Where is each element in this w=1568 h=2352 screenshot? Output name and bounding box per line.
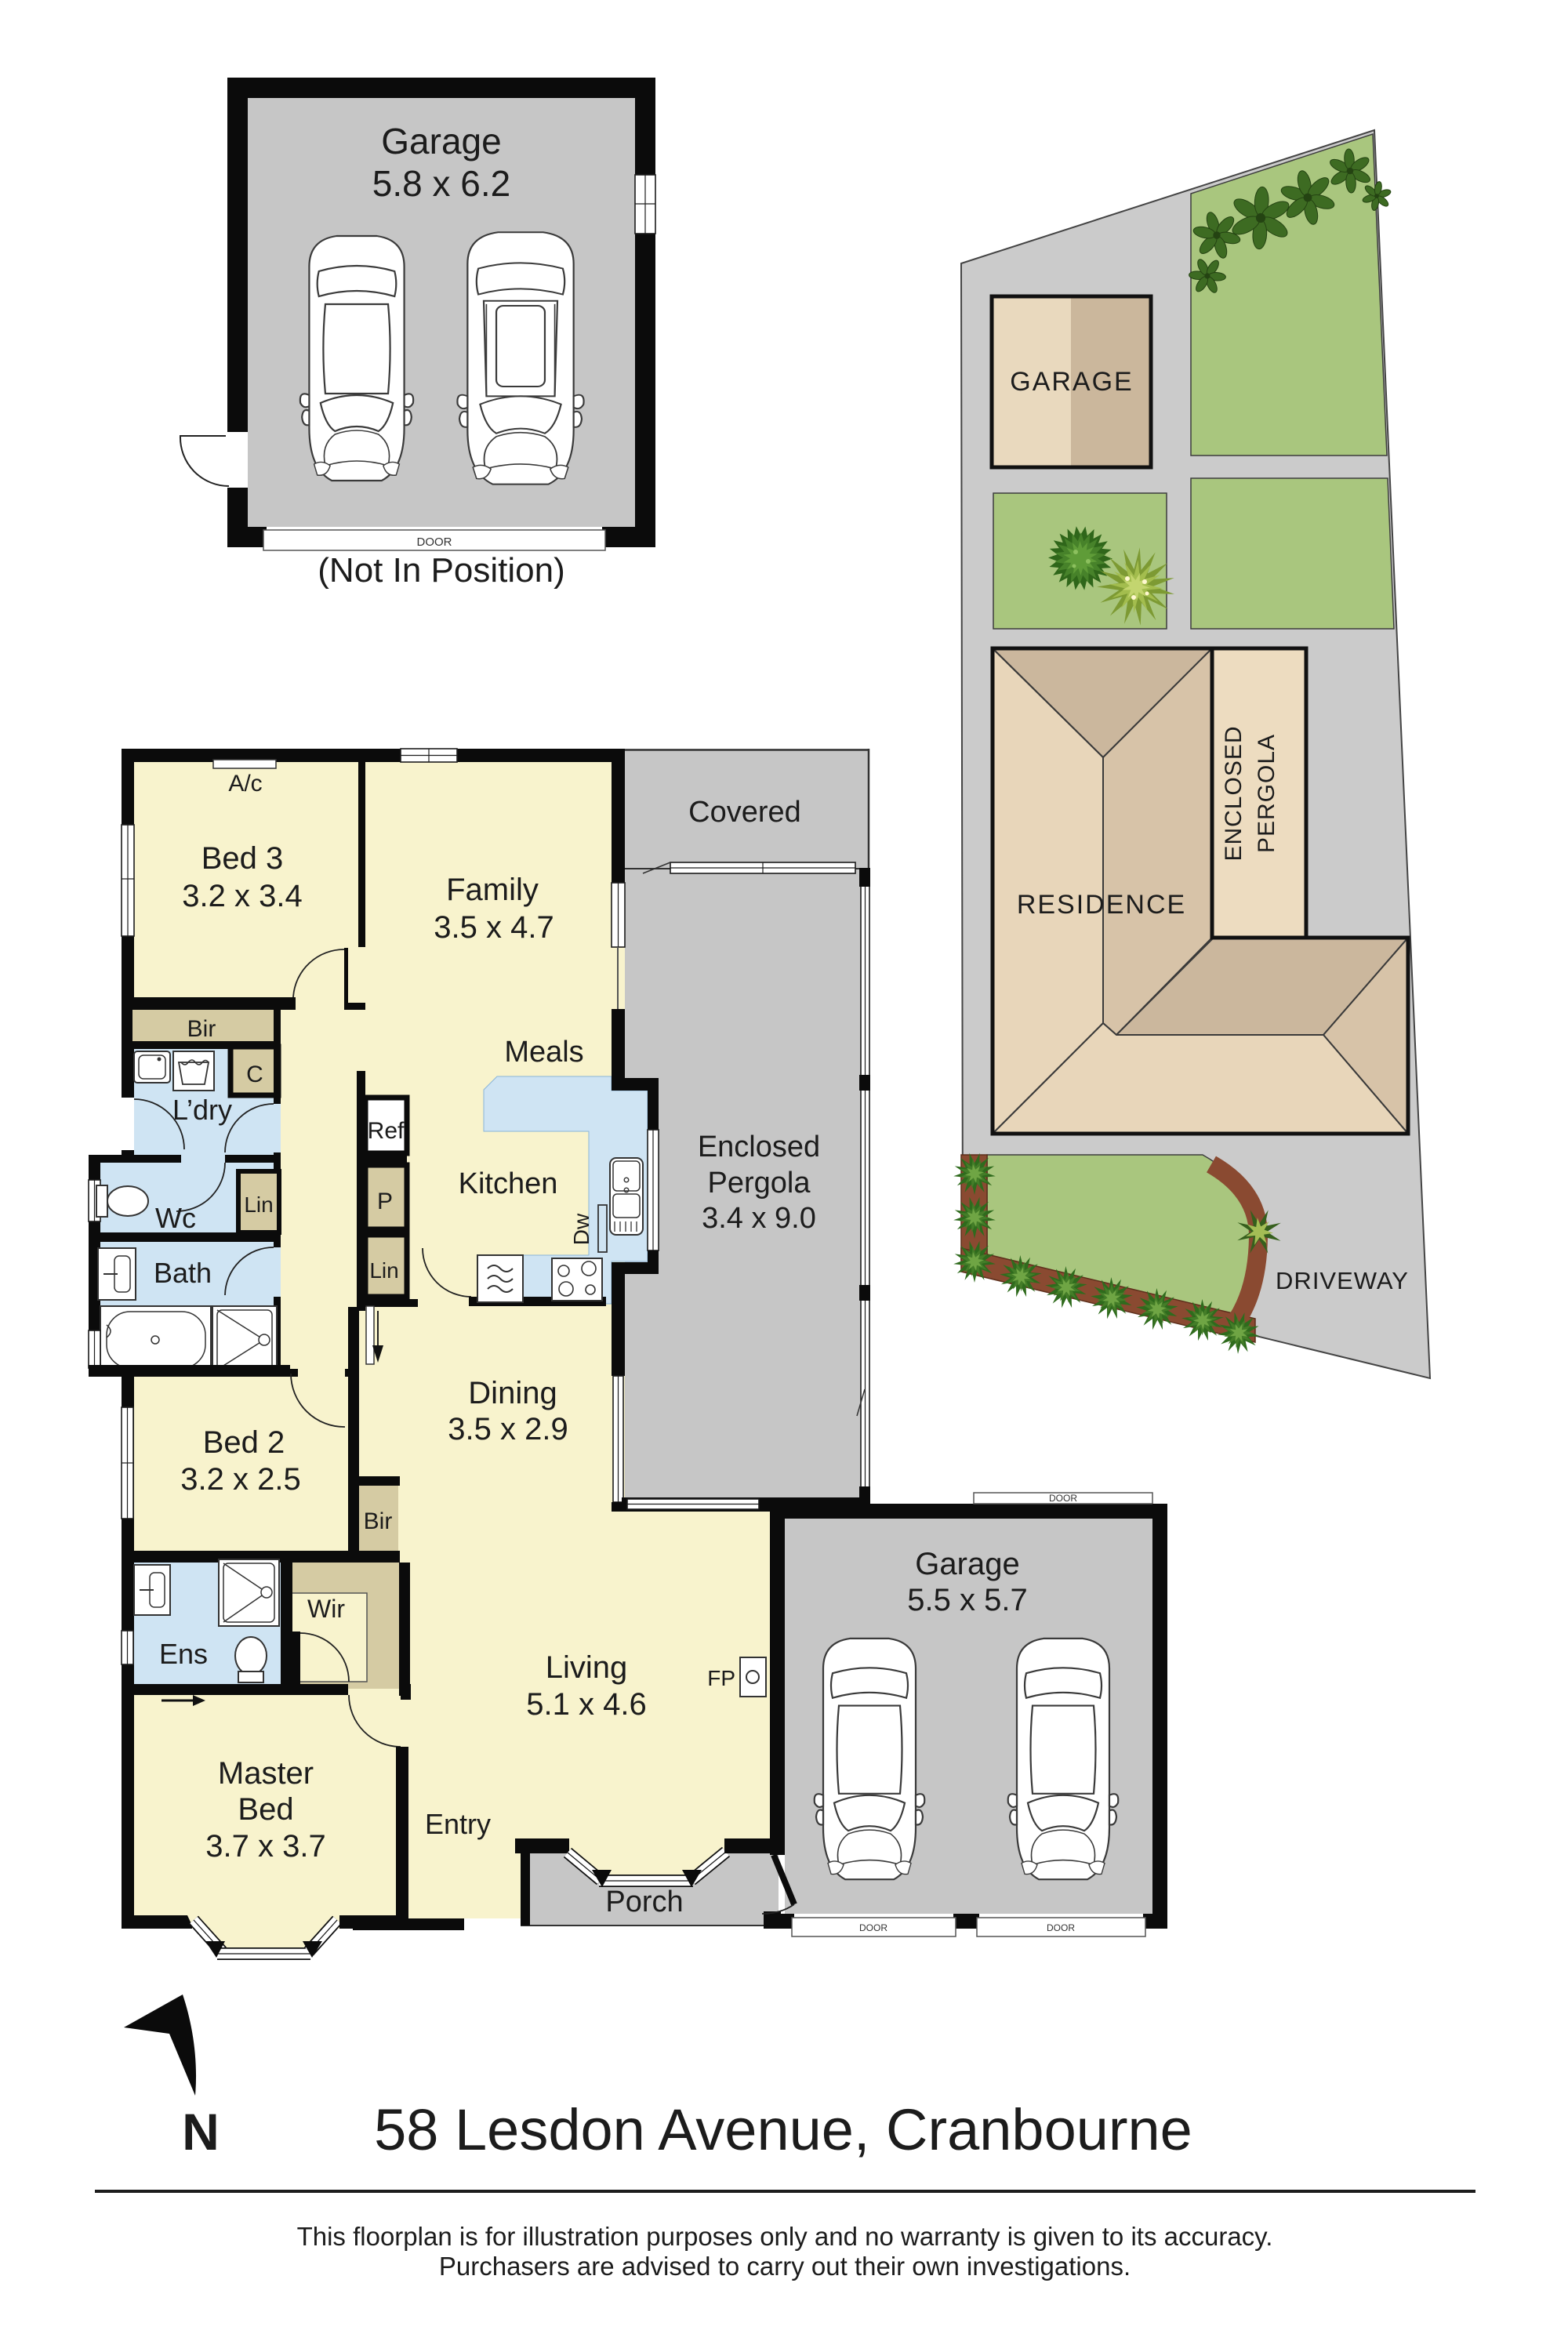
svg-text:3.4 x 9.0: 3.4 x 9.0: [702, 1202, 816, 1235]
svg-text:P: P: [377, 1189, 393, 1214]
svg-text:5.5 x 5.7: 5.5 x 5.7: [907, 1583, 1027, 1617]
svg-text:DOOR: DOOR: [1047, 1922, 1075, 1933]
svg-text:5.1 x 4.6: 5.1 x 4.6: [526, 1687, 646, 1722]
svg-text:GARAGE: GARAGE: [1010, 367, 1133, 397]
svg-text:ENCLOSED: ENCLOSED: [1221, 725, 1247, 861]
svg-text:3.2 x 3.4: 3.2 x 3.4: [182, 879, 302, 913]
svg-text:C: C: [246, 1062, 263, 1087]
svg-text:Bed 2: Bed 2: [203, 1425, 285, 1460]
svg-text:FP: FP: [707, 1666, 735, 1690]
svg-text:N: N: [182, 2103, 220, 2161]
svg-text:Meals: Meals: [504, 1036, 583, 1069]
svg-text:Purchasers are advised to carr: Purchasers are advised to carry out thei…: [439, 2252, 1131, 2281]
svg-text:Bed: Bed: [238, 1792, 293, 1827]
svg-text:Pergola: Pergola: [708, 1167, 811, 1200]
svg-text:3.2 x 2.5: 3.2 x 2.5: [180, 1462, 300, 1497]
svg-text:Covered: Covered: [688, 796, 801, 829]
svg-text:Dw: Dw: [569, 1213, 593, 1245]
svg-text:5.8 x 6.2: 5.8 x 6.2: [372, 163, 510, 204]
svg-text:This floorplan is for illustra: This floorplan is for illustration purpo…: [297, 2222, 1273, 2251]
svg-text:DOOR: DOOR: [859, 1922, 887, 1933]
svg-text:PERGOLA: PERGOLA: [1254, 734, 1279, 853]
svg-text:Enclosed: Enclosed: [698, 1131, 820, 1163]
svg-text:L’dry: L’dry: [172, 1094, 232, 1126]
svg-text:Master: Master: [218, 1756, 314, 1791]
svg-text:Wir: Wir: [307, 1595, 345, 1623]
svg-text:Bath: Bath: [154, 1257, 212, 1289]
svg-text:58 Lesdon Avenue, Cranbourne: 58 Lesdon Avenue, Cranbourne: [374, 2097, 1192, 2162]
svg-text:Garage: Garage: [915, 1547, 1019, 1581]
svg-text:Dining: Dining: [468, 1376, 557, 1410]
svg-text:Bed 3: Bed 3: [201, 841, 284, 876]
svg-text:Wc: Wc: [155, 1202, 196, 1234]
svg-text:Ens: Ens: [159, 1638, 208, 1670]
svg-text:Ref: Ref: [368, 1118, 405, 1144]
svg-text:Family: Family: [446, 873, 539, 907]
svg-text:Bir: Bir: [187, 1016, 216, 1042]
svg-text:3.7 x 3.7: 3.7 x 3.7: [205, 1829, 325, 1864]
svg-text:Porch: Porch: [605, 1886, 683, 1918]
svg-text:Entry: Entry: [425, 1808, 491, 1840]
svg-text:3.5 x 2.9: 3.5 x 2.9: [448, 1412, 568, 1446]
svg-text:Garage: Garage: [381, 121, 501, 162]
svg-text:DRIVEWAY: DRIVEWAY: [1276, 1267, 1409, 1294]
svg-text:Lin: Lin: [244, 1192, 273, 1217]
svg-text:(Not In Position): (Not In Position): [318, 551, 564, 590]
svg-text:Lin: Lin: [369, 1258, 398, 1283]
svg-text:DOOR: DOOR: [1049, 1493, 1077, 1504]
svg-text:3.5 x 4.7: 3.5 x 4.7: [434, 910, 554, 945]
svg-text:A/c: A/c: [228, 771, 262, 797]
svg-text:Living: Living: [546, 1650, 628, 1685]
svg-text:Bir: Bir: [364, 1508, 393, 1534]
svg-text:DOOR: DOOR: [417, 535, 452, 549]
svg-text:Kitchen: Kitchen: [459, 1167, 558, 1200]
svg-text:RESIDENCE: RESIDENCE: [1017, 890, 1186, 920]
